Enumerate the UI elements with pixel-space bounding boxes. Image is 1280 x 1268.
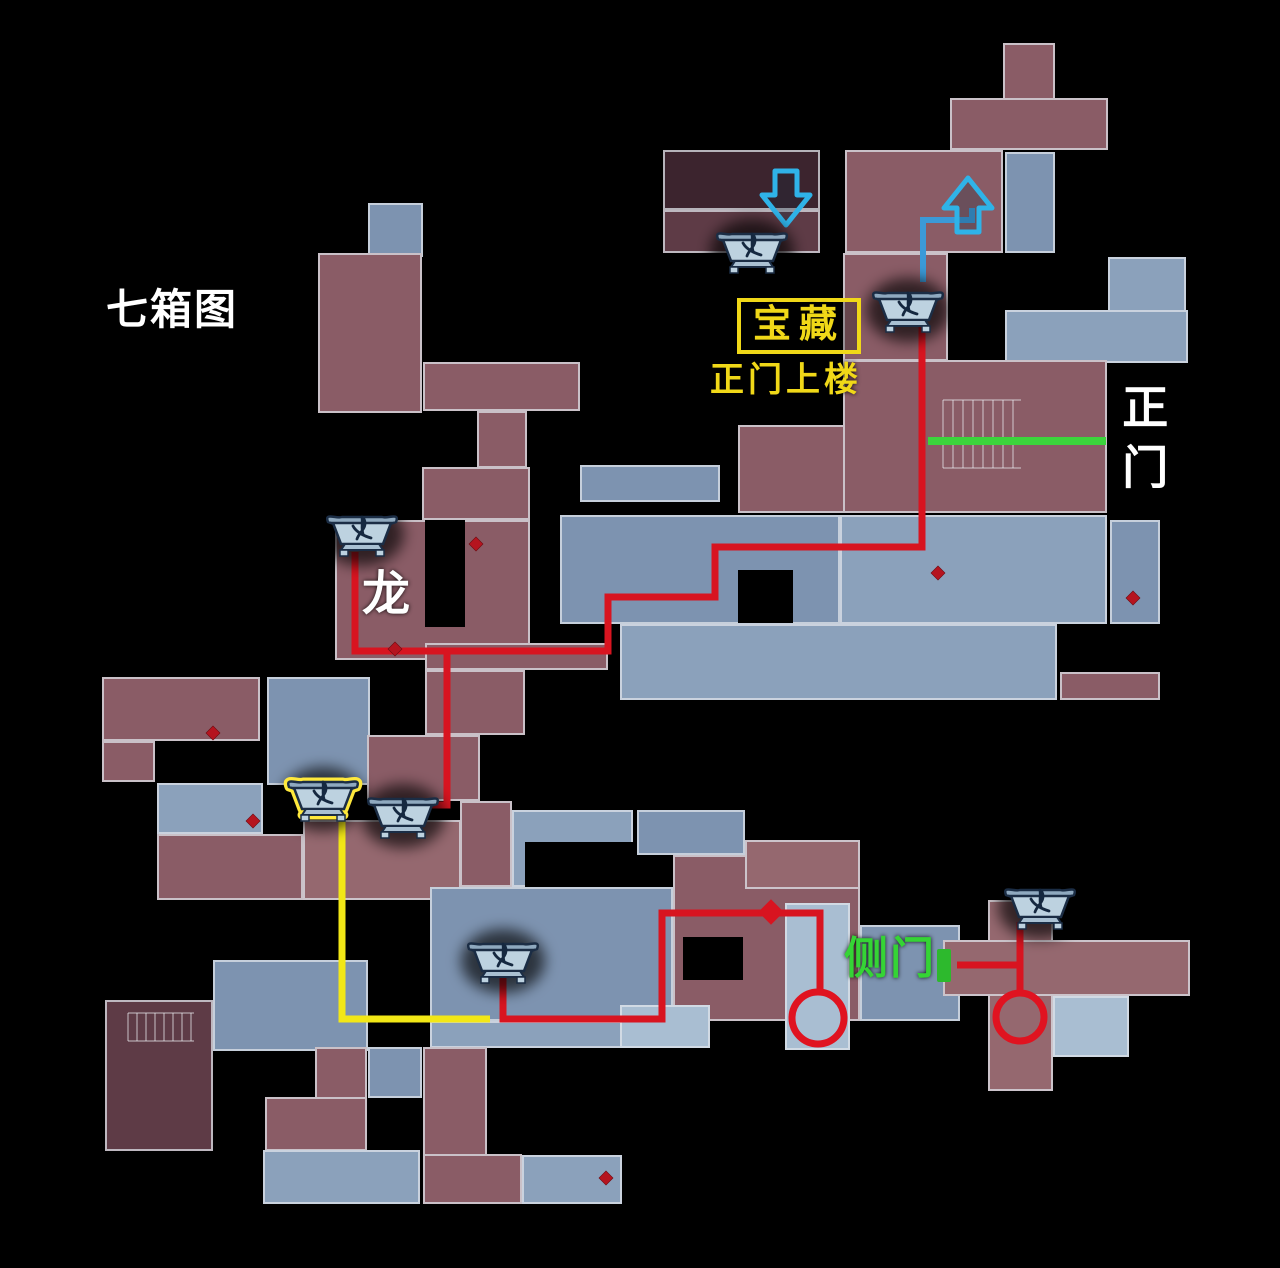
- dragon-label: 龙: [362, 570, 410, 620]
- side-gate-label: 侧门: [844, 936, 936, 982]
- game-map-canvas: 七箱图 宝藏 正门上楼 正门 龙 侧门: [0, 0, 1280, 1268]
- main-gate-label: 正门: [1118, 383, 1166, 503]
- treasure-label: 宝藏: [737, 298, 861, 354]
- map-title: 七箱图: [106, 288, 238, 332]
- treasure-route-label: 正门上楼: [710, 363, 862, 399]
